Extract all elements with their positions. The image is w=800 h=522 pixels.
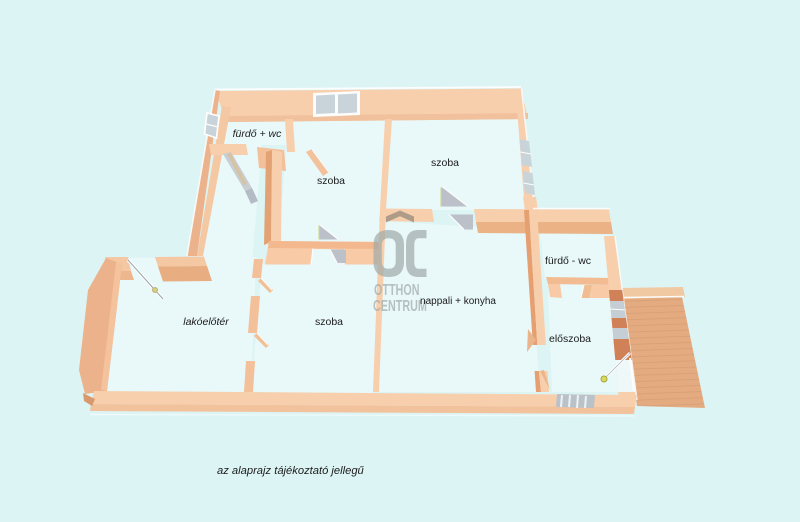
svg-text:szoba: szoba bbox=[317, 175, 345, 187]
svg-text:fürdő - wc: fürdő - wc bbox=[545, 255, 591, 267]
svg-text:az alaprajz tájékoztató jelleg: az alaprajz tájékoztató jellegű bbox=[217, 465, 365, 477]
svg-text:szoba: szoba bbox=[431, 157, 459, 169]
svg-text:nappali + konyha: nappali + konyha bbox=[420, 296, 496, 307]
svg-text:fürdő + wc: fürdő + wc bbox=[233, 128, 282, 140]
svg-text:szoba: szoba bbox=[315, 316, 343, 328]
svg-text:előszoba: előszoba bbox=[549, 333, 591, 345]
svg-text:OTTHON: OTTHON bbox=[374, 281, 419, 298]
svg-text:lakóelőtér: lakóelőtér bbox=[183, 316, 229, 328]
svg-text:CENTRUM: CENTRUM bbox=[373, 297, 427, 314]
